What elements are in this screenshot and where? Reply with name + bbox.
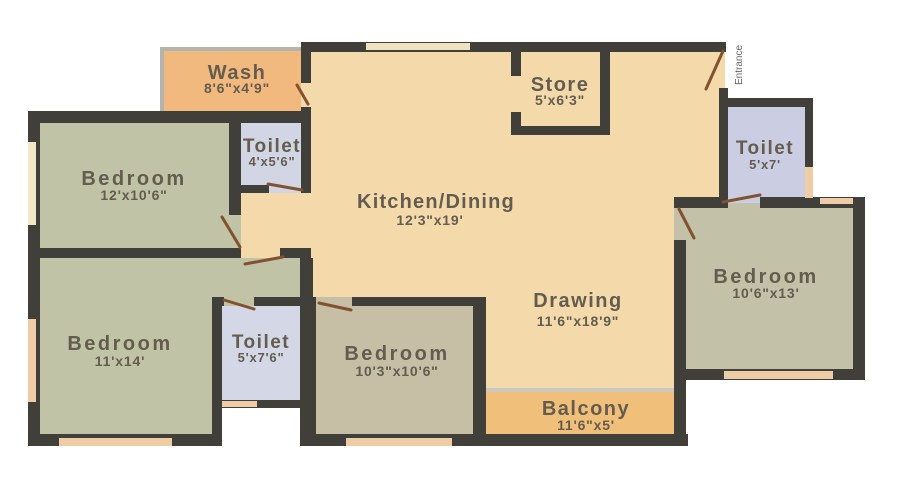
svg-text:Entrance: Entrance bbox=[734, 45, 745, 85]
svg-text:Drawing: Drawing bbox=[533, 290, 622, 312]
svg-text:10'6"x13': 10'6"x13' bbox=[732, 285, 799, 301]
svg-text:11'x14': 11'x14' bbox=[95, 353, 145, 369]
svg-text:Bedroom: Bedroom bbox=[67, 333, 172, 355]
svg-text:Toilet: Toilet bbox=[736, 138, 794, 159]
svg-text:5'x7': 5'x7' bbox=[749, 157, 781, 172]
svg-text:Bedroom: Bedroom bbox=[344, 343, 449, 365]
svg-text:5'x7'6": 5'x7'6" bbox=[238, 350, 285, 365]
svg-text:Kitchen/Dining: Kitchen/Dining bbox=[357, 191, 515, 213]
svg-text:11'6"x5': 11'6"x5' bbox=[557, 417, 615, 433]
svg-text:5'x6'3": 5'x6'3" bbox=[535, 92, 585, 108]
svg-text:12'x10'6": 12'x10'6" bbox=[100, 187, 167, 203]
svg-text:10'3"x10'6": 10'3"x10'6" bbox=[355, 363, 438, 379]
svg-text:8'6"x4'9": 8'6"x4'9" bbox=[204, 80, 270, 96]
svg-text:4'x5'6": 4'x5'6" bbox=[249, 154, 296, 169]
svg-text:12'3"x19': 12'3"x19' bbox=[396, 212, 463, 228]
svg-text:11'6"x18'9": 11'6"x18'9" bbox=[537, 313, 619, 329]
